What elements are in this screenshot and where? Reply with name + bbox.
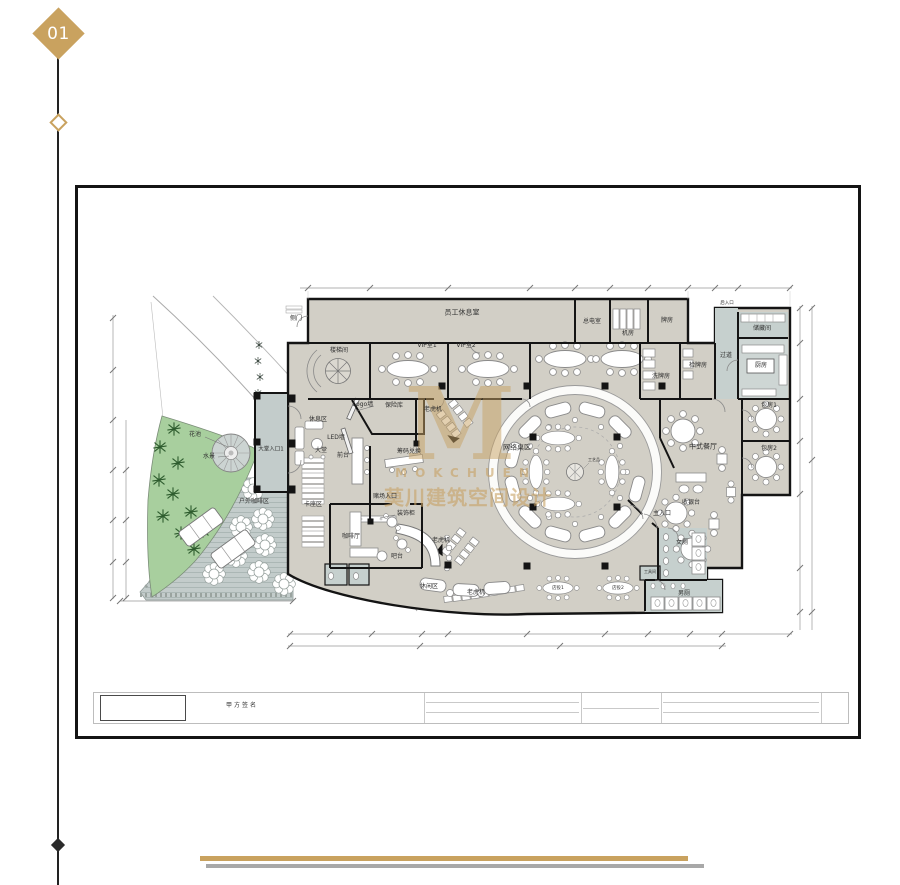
- fountain: [212, 434, 250, 472]
- title-block-divider: [581, 693, 582, 723]
- signature-label: 甲方签名: [226, 703, 258, 709]
- page: 01: [0, 0, 900, 885]
- boundary-line: [151, 302, 163, 418]
- title-block-divider: [821, 693, 822, 723]
- title-block-divider: [424, 693, 425, 723]
- footer-bar-gray: [206, 864, 704, 868]
- title-block: 甲方签名: [93, 692, 849, 724]
- title-block-line: [426, 712, 579, 713]
- title-block-line: [663, 702, 819, 703]
- title-block-line: [426, 702, 579, 703]
- title-block-line: [663, 712, 819, 713]
- title-block-divider: [661, 693, 662, 723]
- side-door-steps: [286, 306, 302, 313]
- title-block-stamp-box: [100, 695, 186, 721]
- footer-bar-gold: [200, 856, 688, 861]
- floor-plan: [0, 0, 900, 885]
- title-block-line: [583, 708, 659, 709]
